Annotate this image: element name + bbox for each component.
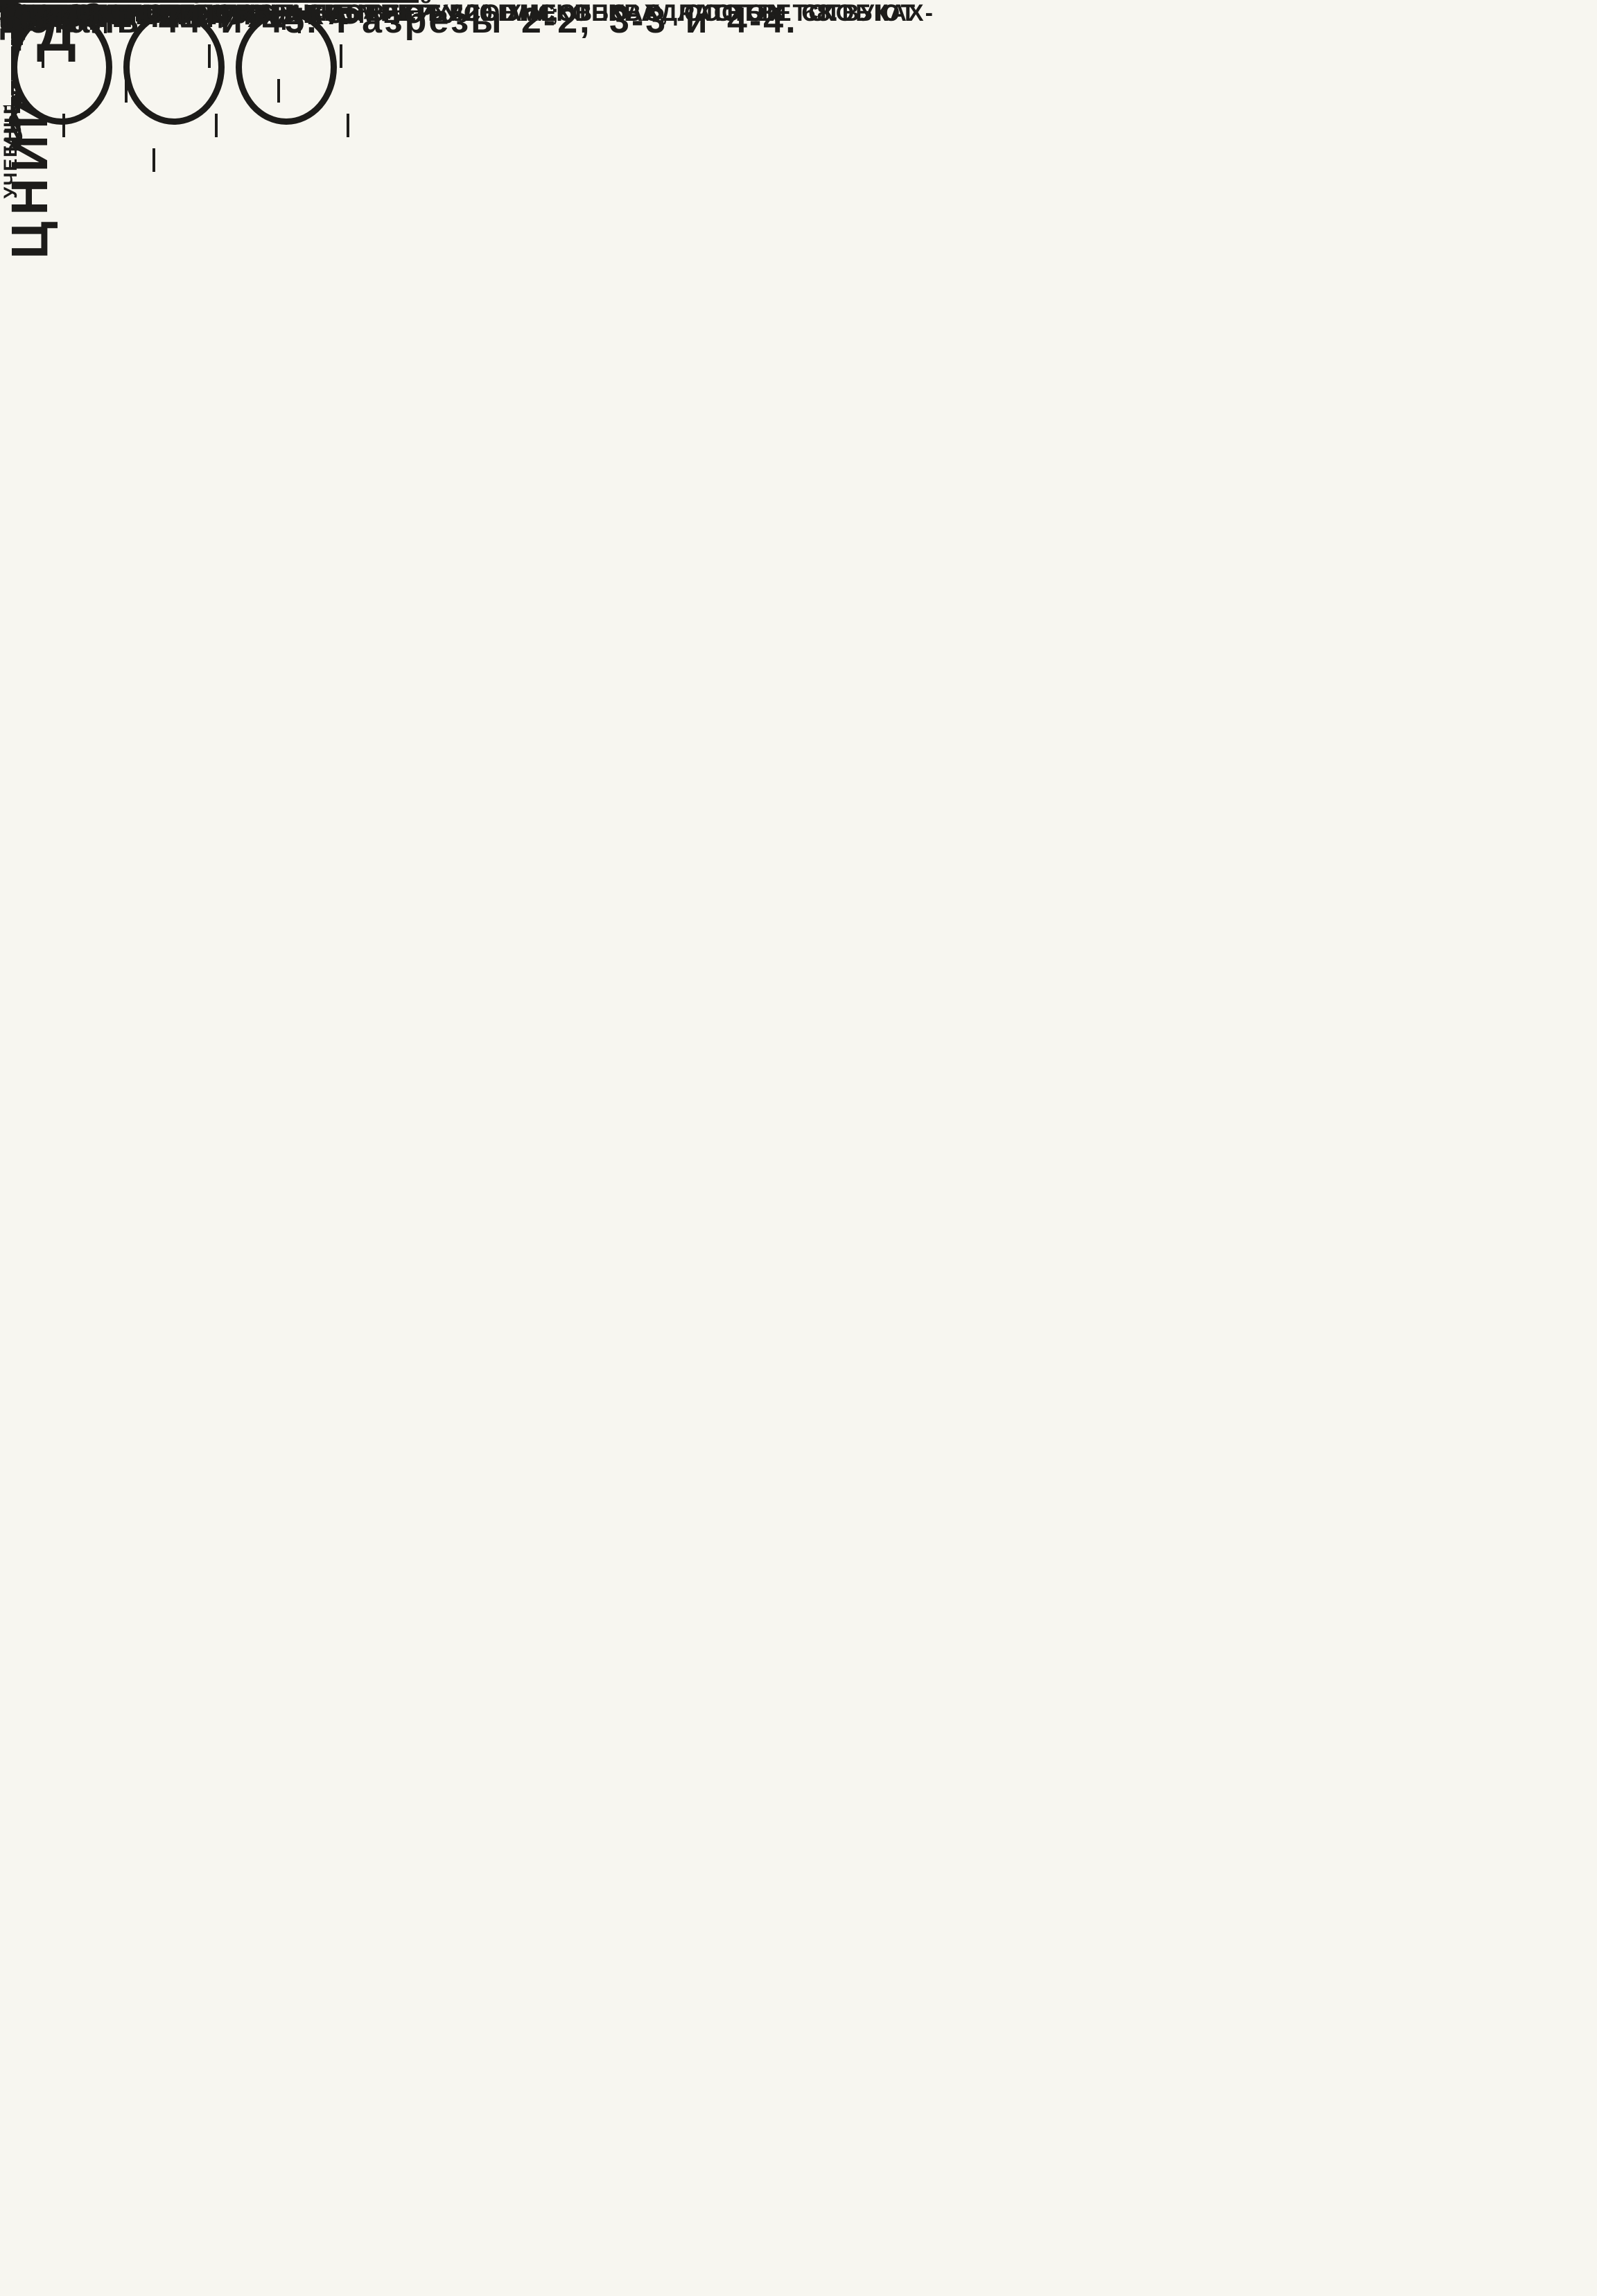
footer-sheet-number: 83 [0, 0, 46, 39]
drawing-sheet: ИНВЕНТ. № ВЗАМЕН НАЧ. ОТДЕЛА ГЛ. ИНЖ. ПР… [0, 0, 1597, 2296]
brick-joint [215, 114, 218, 137]
brick-joint [62, 114, 65, 137]
brick-joint [277, 79, 280, 103]
brick-joint [347, 114, 349, 137]
brick-joint [125, 79, 128, 103]
brick-joint [152, 148, 155, 172]
drawing-title: Деталь 44 и 45. Разрезы 2-2, 3-3 и 4-4. [0, 0, 798, 42]
brick-joint [208, 44, 211, 68]
brick-joint [340, 44, 342, 68]
